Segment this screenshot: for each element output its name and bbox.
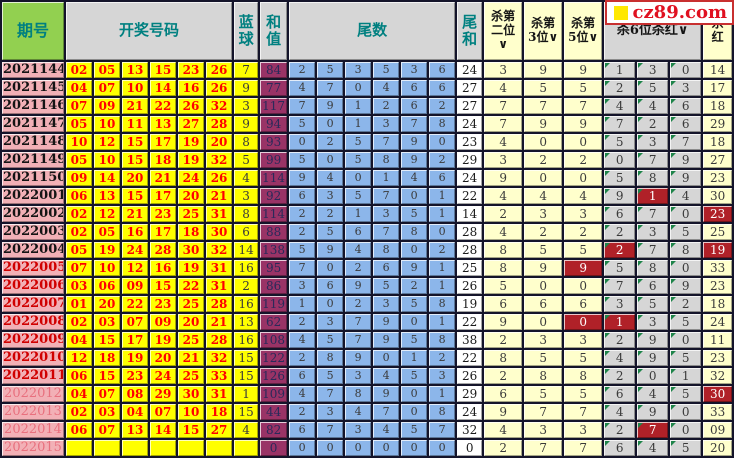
sum-cell: 92 <box>260 188 287 204</box>
tail-sum-cell: 0 <box>457 440 482 456</box>
tail-digit-cell: 4 <box>373 368 399 384</box>
red-ball-cell: 28 <box>206 116 232 132</box>
kill-red-cell: 23 <box>703 350 732 366</box>
kill-pos2-cell: 8 <box>484 242 522 258</box>
tail-digit-cell: 7 <box>317 80 343 96</box>
table-row: 20211440205131523267842535362439913014 <box>2 62 732 78</box>
kill-pos3-cell: 0 <box>524 170 562 186</box>
tail-digit-cell: 2 <box>289 350 315 366</box>
red-ball-cell: 29 <box>150 386 176 402</box>
red-ball-cell: 18 <box>206 404 232 420</box>
sum-cell: 62 <box>260 314 287 330</box>
period-cell: 2022010 <box>2 350 64 366</box>
period-cell: 2022006 <box>2 278 64 294</box>
kill-pos3-cell: 9 <box>524 116 562 132</box>
tail-digit-cell: 3 <box>373 206 399 222</box>
red-ball-cell: 05 <box>66 242 92 258</box>
red-ball-cell: 09 <box>66 170 92 186</box>
red-ball-cell: 13 <box>122 62 148 78</box>
kill-pos2-cell: 4 <box>484 224 522 240</box>
kill6-red-cell: 9 <box>670 152 701 168</box>
sum-cell: 114 <box>260 170 287 186</box>
tail-digit-cell: 6 <box>429 62 455 78</box>
red-ball-cell: 22 <box>178 278 204 294</box>
kill6-red-cell: 5 <box>604 134 635 150</box>
red-ball-cell: 32 <box>206 242 232 258</box>
red-ball-cell: 07 <box>66 260 92 276</box>
kill6-red-cell: 1 <box>604 62 635 78</box>
red-ball-cell: 06 <box>66 422 92 438</box>
kill-pos2-cell: 8 <box>484 350 522 366</box>
tail-sum-cell: 24 <box>457 170 482 186</box>
tail-digit-cell: 5 <box>317 62 343 78</box>
kill6-red-cell: 9 <box>604 188 635 204</box>
red-ball-cell <box>178 440 204 456</box>
blue-ball-cell: 16 <box>234 260 258 276</box>
tail-digit-cell: 9 <box>373 386 399 402</box>
red-ball-cell: 21 <box>206 314 232 330</box>
tail-digit-cell: 0 <box>317 152 343 168</box>
blue-ball-cell: 16 <box>234 296 258 312</box>
tail-digit-cell: 6 <box>373 260 399 276</box>
kill-pos2-cell: 4 <box>484 422 522 438</box>
blue-ball-cell: 13 <box>234 314 258 330</box>
red-ball-cell: 11 <box>122 116 148 132</box>
red-ball-cell: 12 <box>94 206 120 222</box>
kill-pos2-cell: 9 <box>484 404 522 420</box>
kill-pos2-cell: 8 <box>484 260 522 276</box>
kill-pos2-cell: 4 <box>484 134 522 150</box>
tail-digit-cell: 7 <box>373 224 399 240</box>
period-cell: 2022007 <box>2 296 64 312</box>
kill6-red-cell: 0 <box>670 62 701 78</box>
tail-digit-cell: 5 <box>401 332 427 348</box>
red-ball-cell: 10 <box>122 80 148 96</box>
tail-digit-cell: 0 <box>289 134 315 150</box>
tail-digit-cell: 9 <box>317 242 343 258</box>
tail-digit-cell: 8 <box>401 224 427 240</box>
tail-digit-cell: 1 <box>373 170 399 186</box>
red-ball-cell <box>94 440 120 456</box>
blue-ball-cell: 7 <box>234 62 258 78</box>
kill6-red-cell: 7 <box>637 422 668 438</box>
kill-pos3-cell: 5 <box>524 80 562 96</box>
kill-pos3-cell: 8 <box>524 368 562 384</box>
red-ball-cell: 32 <box>206 98 232 114</box>
red-ball-cell: 10 <box>94 260 120 276</box>
kill6-red-cell: 6 <box>670 116 701 132</box>
tail-digit-cell: 1 <box>429 206 455 222</box>
red-ball-cell <box>66 440 92 456</box>
kill-pos5-cell: 3 <box>564 332 602 348</box>
tail-digit-cell: 9 <box>317 98 343 114</box>
red-ball-cell: 21 <box>122 206 148 222</box>
red-ball-cell: 19 <box>178 134 204 150</box>
tail-digit-cell: 1 <box>401 350 427 366</box>
kill6-red-cell: 9 <box>670 278 701 294</box>
tail-digit-cell: 5 <box>401 206 427 222</box>
red-ball-cell: 17 <box>150 224 176 240</box>
tail-digit-cell: 1 <box>429 386 455 402</box>
kill-red-cell: 24 <box>703 314 732 330</box>
kill-red-cell: 14 <box>703 62 732 78</box>
tail-digit-cell: 3 <box>317 404 343 420</box>
table-row: 20211470510111327289945013782479972629 <box>2 116 732 132</box>
period-cell: 2022002 <box>2 206 64 222</box>
red-ball-cell: 12 <box>122 260 148 276</box>
kill6-red-cell: 2 <box>604 80 635 96</box>
red-ball-cell: 25 <box>178 332 204 348</box>
red-ball-cell: 05 <box>66 152 92 168</box>
kill-pos5-cell: 0 <box>564 278 602 294</box>
tail-digit-cell: 3 <box>289 278 315 294</box>
blue-ball-cell: 4 <box>234 170 258 186</box>
tail-digit-cell: 5 <box>345 152 371 168</box>
red-ball-cell <box>150 440 176 456</box>
blue-ball-cell <box>234 440 258 456</box>
kill-pos2-cell: 6 <box>484 296 522 312</box>
table-row: 20211450407101416269774704662745525317 <box>2 80 732 96</box>
tail-digit-cell: 8 <box>345 386 371 402</box>
table-row: 20220150000000027764520 <box>2 440 732 456</box>
red-ball-cell: 10 <box>94 152 120 168</box>
red-ball-cell: 16 <box>122 224 148 240</box>
kill-pos5-cell: 6 <box>564 296 602 312</box>
tail-digit-cell: 2 <box>345 260 371 276</box>
red-ball-cell: 23 <box>150 296 176 312</box>
lottery-table-body: 2021144020513152326784253536243991301420… <box>2 62 732 456</box>
red-ball-cell: 32 <box>206 350 232 366</box>
red-ball-cell: 09 <box>94 98 120 114</box>
kill6-red-cell: 1 <box>604 314 635 330</box>
tail-digit-cell: 0 <box>345 170 371 186</box>
tail-sum-cell: 22 <box>457 350 482 366</box>
tail-digit-cell: 3 <box>429 368 455 384</box>
sum-cell: 82 <box>260 422 287 438</box>
red-ball-cell: 17 <box>150 134 176 150</box>
kill-pos2-cell: 2 <box>484 368 522 384</box>
red-ball-cell: 22 <box>150 98 176 114</box>
table-row: 202200802030709202113622379012290013524 <box>2 314 732 330</box>
red-ball-cell: 15 <box>122 152 148 168</box>
kill-pos2-cell: 3 <box>484 152 522 168</box>
kill-pos3-cell: 0 <box>524 314 562 330</box>
kill6-red-cell: 2 <box>604 368 635 384</box>
tail-sum-cell: 38 <box>457 332 482 348</box>
kill6-red-cell: 6 <box>604 386 635 402</box>
tail-digit-cell: 4 <box>289 386 315 402</box>
red-ball-cell: 18 <box>178 224 204 240</box>
kill6-red-cell: 0 <box>670 422 701 438</box>
period-cell: 2022001 <box>2 188 64 204</box>
red-ball-cell: 15 <box>94 368 120 384</box>
red-ball-cell: 28 <box>150 242 176 258</box>
kill6-red-cell: 0 <box>637 368 668 384</box>
trend-table: 期号 开奖号码 蓝 球 和 值 尾数 尾 和 杀第 二位 ∨ 杀第 3位∨ 杀第… <box>0 0 734 458</box>
red-ball-cell: 12 <box>94 134 120 150</box>
kill6-red-cell: 2 <box>604 332 635 348</box>
red-ball-cell: 18 <box>94 350 120 366</box>
kill-pos2-cell: 7 <box>484 116 522 132</box>
red-ball-cell: 20 <box>178 314 204 330</box>
red-ball-cell: 31 <box>206 278 232 294</box>
tail-digit-cell: 5 <box>401 422 427 438</box>
tail-digit-cell: 7 <box>429 422 455 438</box>
tail-digit-cell: 9 <box>345 278 371 294</box>
red-ball-cell: 14 <box>150 80 176 96</box>
tail-digit-cell: 4 <box>317 170 343 186</box>
tail-digit-cell: 4 <box>401 170 427 186</box>
blue-ball-cell: 15 <box>234 368 258 384</box>
table-row: 2022004051924283032141385948022885527819 <box>2 242 732 258</box>
kill-pos5-cell: 2 <box>564 224 602 240</box>
red-ball-cell: 19 <box>122 350 148 366</box>
kill6-red-cell: 5 <box>670 350 701 366</box>
red-ball-cell: 30 <box>178 242 204 258</box>
tail-digit-cell: 9 <box>401 152 427 168</box>
red-ball-cell: 10 <box>94 116 120 132</box>
kill-pos3-cell: 7 <box>524 440 562 456</box>
blue-ball-cell: 15 <box>234 404 258 420</box>
kill6-red-cell: 7 <box>637 242 668 258</box>
red-ball-cell: 02 <box>66 404 92 420</box>
kill6-red-cell: 6 <box>670 98 701 114</box>
kill6-red-cell: 2 <box>670 296 701 312</box>
tail-digit-cell: 0 <box>401 242 427 258</box>
kill-red-cell: 09 <box>703 422 732 438</box>
tail-digit-cell: 6 <box>401 80 427 96</box>
tail-digit-cell: 5 <box>317 332 343 348</box>
blue-ball-cell: 14 <box>234 242 258 258</box>
tail-digit-cell: 7 <box>289 98 315 114</box>
tail-sum-cell: 26 <box>457 278 482 294</box>
tail-digit-cell: 0 <box>429 134 455 150</box>
tail-sum-cell: 27 <box>457 80 482 96</box>
tail-digit-cell: 3 <box>401 62 427 78</box>
tail-digit-cell: 3 <box>345 368 371 384</box>
red-ball-cell: 15 <box>94 332 120 348</box>
red-ball-cell: 20 <box>178 188 204 204</box>
kill6-red-cell: 5 <box>637 296 668 312</box>
tail-digit-cell: 0 <box>289 440 315 456</box>
tail-digit-cell: 7 <box>289 260 315 276</box>
kill6-red-cell: 7 <box>604 278 635 294</box>
tail-digit-cell: 5 <box>317 368 343 384</box>
tail-digit-cell: 9 <box>345 350 371 366</box>
red-ball-cell: 26 <box>206 62 232 78</box>
red-ball-cell: 04 <box>122 404 148 420</box>
kill-red-cell: 23 <box>703 278 732 294</box>
red-ball-cell: 25 <box>178 206 204 222</box>
tail-digit-cell: 3 <box>373 116 399 132</box>
tail-digit-cell: 5 <box>289 242 315 258</box>
kill-pos3-cell: 3 <box>524 422 562 438</box>
kill-pos5-cell: 8 <box>564 368 602 384</box>
red-ball-cell: 16 <box>150 260 176 276</box>
kill-red-cell: 25 <box>703 224 732 240</box>
tail-digit-cell: 3 <box>345 62 371 78</box>
tail-digit-cell: 0 <box>373 350 399 366</box>
kill6-red-cell: 9 <box>637 350 668 366</box>
red-ball-cell: 28 <box>206 332 232 348</box>
tail-sum-cell: 22 <box>457 188 482 204</box>
red-ball-cell: 31 <box>206 206 232 222</box>
sum-cell: 109 <box>260 386 287 402</box>
red-ball-cell: 15 <box>150 62 176 78</box>
tail-sum-cell: 32 <box>457 422 482 438</box>
tail-digit-cell: 9 <box>401 134 427 150</box>
tail-digit-cell: 0 <box>317 440 343 456</box>
tail-digit-cell: 6 <box>345 224 371 240</box>
sum-cell: 122 <box>260 350 287 366</box>
kill6-red-cell: 3 <box>637 134 668 150</box>
kill6-red-cell: 4 <box>604 98 635 114</box>
blue-ball-cell: 8 <box>234 206 258 222</box>
red-ball-cell: 22 <box>122 296 148 312</box>
kill-pos3-cell: 3 <box>524 332 562 348</box>
tail-digit-cell: 2 <box>373 98 399 114</box>
period-cell: 2022012 <box>2 386 64 402</box>
tail-digit-cell: 7 <box>345 314 371 330</box>
kill6-red-cell: 4 <box>637 98 668 114</box>
kill6-red-cell: 2 <box>637 116 668 132</box>
tail-digit-cell: 3 <box>345 422 371 438</box>
red-ball-cell: 14 <box>150 422 176 438</box>
kill-pos3-cell: 3 <box>524 206 562 222</box>
sum-cell: 138 <box>260 242 287 258</box>
red-ball-cell: 31 <box>206 260 232 276</box>
red-ball-cell: 19 <box>150 332 176 348</box>
kill-pos3-cell: 5 <box>524 242 562 258</box>
kill-pos5-cell: 3 <box>564 422 602 438</box>
period-cell: 2022009 <box>2 332 64 348</box>
kill6-red-cell: 8 <box>637 260 668 276</box>
red-ball-cell: 32 <box>206 152 232 168</box>
kill6-red-cell: 2 <box>604 422 635 438</box>
header-kill-pos2[interactable]: 杀第 二位 ∨ <box>484 2 522 60</box>
red-ball-cell: 10 <box>178 404 204 420</box>
period-cell: 2022004 <box>2 242 64 258</box>
site-logo[interactable]: cz89.com <box>605 0 734 25</box>
kill-pos5-cell: 5 <box>564 242 602 258</box>
table-row: 202201302030407101815442347082497749033 <box>2 404 732 420</box>
red-ball-cell: 10 <box>66 134 92 150</box>
tail-digit-cell: 7 <box>317 422 343 438</box>
tail-digit-cell: 3 <box>317 314 343 330</box>
red-ball-cell: 20 <box>122 170 148 186</box>
red-ball-cell: 09 <box>150 314 176 330</box>
red-ball-cell: 28 <box>206 296 232 312</box>
tail-digit-cell: 7 <box>317 386 343 402</box>
red-ball-cell: 06 <box>94 278 120 294</box>
kill6-red-cell: 1 <box>637 188 668 204</box>
kill-red-cell: 23 <box>703 170 732 186</box>
table-row: 2022010121819202132151222890122285549523 <box>2 350 732 366</box>
red-ball-cell: 04 <box>66 386 92 402</box>
red-ball-cell: 09 <box>122 278 148 294</box>
header-kill-pos3[interactable]: 杀第 3位∨ <box>524 2 562 60</box>
red-ball-cell: 15 <box>122 188 148 204</box>
blue-ball-cell: 4 <box>234 422 258 438</box>
red-ball-cell: 04 <box>66 80 92 96</box>
kill-pos5-cell: 7 <box>564 98 602 114</box>
tail-digit-cell: 0 <box>401 188 427 204</box>
sum-cell: 0 <box>260 440 287 456</box>
red-ball-cell: 18 <box>150 152 176 168</box>
tail-digit-cell: 8 <box>429 116 455 132</box>
red-ball-cell: 16 <box>178 80 204 96</box>
table-row: 20220030205161718306882567802842223525 <box>2 224 732 240</box>
red-ball-cell: 15 <box>150 278 176 294</box>
tail-digit-cell: 5 <box>289 152 315 168</box>
tail-digit-cell: 5 <box>373 62 399 78</box>
tail-sum-cell: 24 <box>457 62 482 78</box>
period-cell: 2022008 <box>2 314 64 330</box>
kill6-red-cell: 9 <box>670 170 701 186</box>
kill-pos3-cell: 9 <box>524 62 562 78</box>
kill6-red-cell: 4 <box>604 350 635 366</box>
kill6-red-cell: 3 <box>637 224 668 240</box>
tail-digit-cell: 2 <box>289 314 315 330</box>
kill-pos5-cell: 3 <box>564 206 602 222</box>
tail-digit-cell: 7 <box>401 116 427 132</box>
tail-digit-cell: 5 <box>289 116 315 132</box>
red-ball-cell: 13 <box>122 422 148 438</box>
tail-digit-cell: 0 <box>429 440 455 456</box>
table-row: 20220140607131415274826734573243327009 <box>2 422 732 438</box>
period-cell: 2022005 <box>2 260 64 276</box>
sum-cell: 114 <box>260 206 287 222</box>
tail-digit-cell: 9 <box>373 332 399 348</box>
kill-red-cell: 19 <box>703 242 732 258</box>
kill6-red-cell: 5 <box>637 80 668 96</box>
tail-digit-cell: 6 <box>289 188 315 204</box>
red-ball-cell: 07 <box>94 80 120 96</box>
tail-digit-cell: 0 <box>345 440 371 456</box>
tail-digit-cell: 5 <box>345 188 371 204</box>
red-ball-cell: 07 <box>94 422 120 438</box>
tail-digit-cell: 4 <box>345 404 371 420</box>
period-cell: 2022003 <box>2 224 64 240</box>
kill-red-cell: 33 <box>703 404 732 420</box>
tail-digit-cell: 2 <box>289 62 315 78</box>
tail-digit-cell: 0 <box>345 80 371 96</box>
header-kill-pos5[interactable]: 杀第 5位∨ <box>564 2 602 60</box>
tail-digit-cell: 8 <box>429 296 455 312</box>
red-ball-cell: 03 <box>94 314 120 330</box>
red-ball-cell: 06 <box>66 368 92 384</box>
kill6-red-cell: 6 <box>604 440 635 456</box>
red-ball-cell: 23 <box>122 368 148 384</box>
period-cell: 2022015 <box>2 440 64 456</box>
red-ball-cell: 02 <box>66 314 92 330</box>
table-row: 20211481012151719208930257902340053718 <box>2 134 732 150</box>
tail-digit-cell: 5 <box>373 278 399 294</box>
kill-pos5-cell: 4 <box>564 188 602 204</box>
kill-red-cell: 32 <box>703 368 732 384</box>
tail-digit-cell: 5 <box>317 224 343 240</box>
kill6-red-cell: 0 <box>670 206 701 222</box>
kill6-red-cell: 4 <box>637 440 668 456</box>
sum-cell: 44 <box>260 404 287 420</box>
red-ball-cell: 05 <box>94 62 120 78</box>
red-ball-cell: 20 <box>150 350 176 366</box>
tail-digit-cell: 6 <box>317 278 343 294</box>
kill-pos2-cell: 6 <box>484 386 522 402</box>
tail-digit-cell: 8 <box>317 350 343 366</box>
table-row: 2022009041517192528161084579583823329011 <box>2 332 732 348</box>
tail-digit-cell: 8 <box>429 404 455 420</box>
